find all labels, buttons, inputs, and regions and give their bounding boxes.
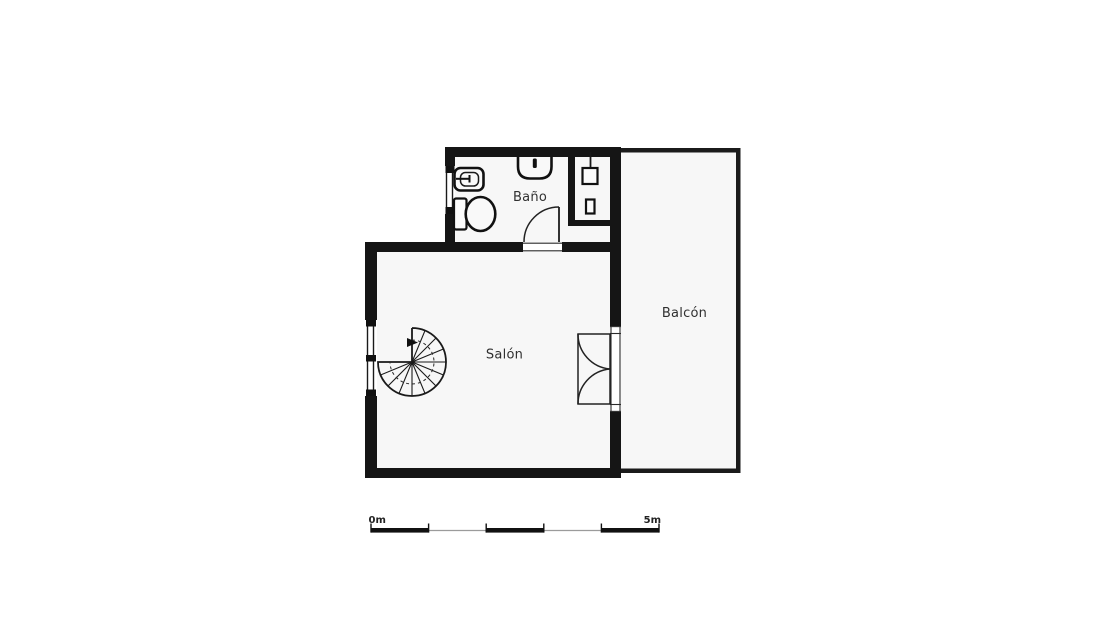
- washbasin-icon: [518, 157, 552, 179]
- window-cap: [366, 320, 376, 327]
- toilet-icon: [454, 197, 495, 231]
- right-wall-upper: [610, 147, 621, 326]
- bathroom-label: Baño: [513, 190, 547, 205]
- window-cap: [366, 355, 376, 362]
- balcony-right-parapet: [736, 148, 741, 473]
- scale-segment: [371, 528, 429, 533]
- living-room-label: Salón: [486, 348, 523, 363]
- right-wall-lower: [610, 412, 621, 478]
- living-room-window: [365, 320, 377, 396]
- washbasin-tap: [533, 159, 537, 169]
- bathroom-top-wall: [445, 147, 621, 157]
- window-cap: [366, 390, 376, 397]
- bidet-icon: [455, 168, 484, 191]
- window-cap: [446, 166, 455, 173]
- heater-closet-bottom-wall: [568, 220, 610, 226]
- heater-box: [583, 168, 598, 184]
- toilet-bowl: [466, 197, 496, 231]
- heater-closet-left-wall: [568, 157, 575, 226]
- divider-wall-left: [365, 242, 523, 252]
- balcony-top-parapet: [621, 148, 741, 153]
- balcony-bottom-parapet: [621, 469, 741, 474]
- floor-plan-canvas: Baño Salón Balcón 0m 5m: [0, 0, 1110, 626]
- scale-segment: [486, 528, 544, 533]
- scale-bar: 0m 5m: [369, 515, 662, 533]
- living-room-bottom-wall: [365, 468, 621, 478]
- balcony-label: Balcón: [662, 306, 707, 321]
- shower-drain: [586, 200, 595, 214]
- floor-plan-page: Baño Salón Balcón 0m 5m: [0, 0, 1110, 626]
- scale-segment: [601, 528, 659, 533]
- door-opening: [610, 326, 621, 412]
